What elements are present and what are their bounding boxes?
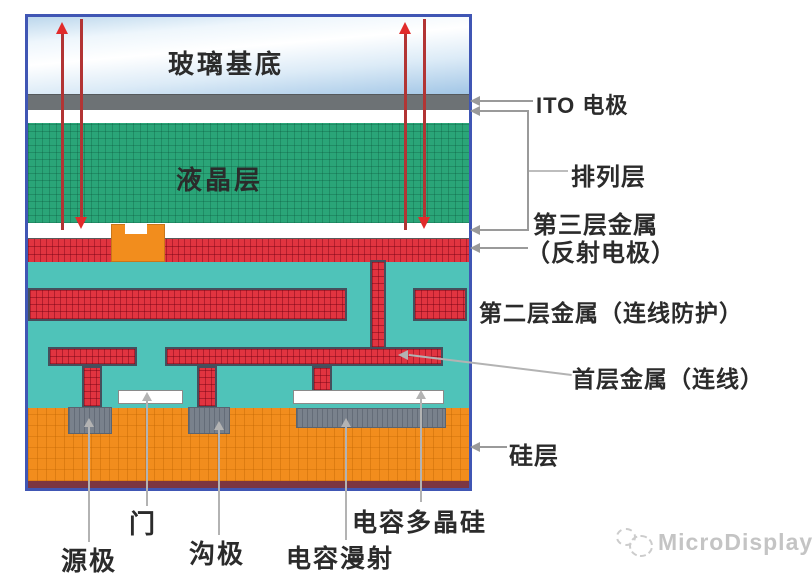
- metal3-leader-arrowhead: [470, 243, 480, 253]
- alignment-bracket-top-line: [473, 110, 529, 112]
- gate-label: 门: [129, 504, 157, 541]
- drain-leader-line: [218, 425, 220, 535]
- light-down-arrowhead: [75, 217, 87, 229]
- light-up-arrowhead: [399, 22, 411, 34]
- lcos-cross-section-figure: 玻璃基底 液晶层 ITO 电极 排列层 第三层金属 （反射电极） 第二层金属（连…: [0, 0, 812, 579]
- metal1-left-bar: [48, 347, 137, 366]
- light-down-arrowhead: [418, 217, 430, 229]
- light-arrow-line: [423, 19, 426, 217]
- source-label: 源极: [61, 541, 117, 578]
- via-column: [370, 260, 386, 349]
- cap-diffusion-leader-arrowhead: [341, 418, 351, 427]
- light-up-arrowhead: [56, 22, 68, 34]
- source-leader-line: [88, 422, 90, 542]
- cap-poly-leader-arrowhead: [416, 390, 426, 399]
- metal1-label: 首层金属（连线）: [572, 360, 764, 394]
- source-leader-arrowhead: [84, 418, 94, 427]
- metal2-label: 第二层金属（连线防护）: [479, 294, 743, 328]
- via-source: [82, 366, 102, 408]
- cap-diffusion-region: [296, 408, 446, 428]
- pixel-gap-notch: [125, 224, 147, 234]
- drain-leader-arrowhead: [214, 421, 224, 430]
- ito-label: ITO 电极: [536, 88, 628, 120]
- alignment-layer-top: [28, 110, 469, 123]
- metal3-label-line2: （反射电极）: [526, 233, 676, 268]
- light-arrow-line: [80, 19, 83, 217]
- alignment-layer-bottom: [28, 223, 469, 238]
- metal2-shield-right: [413, 288, 467, 321]
- metal3-reflective-layer: [28, 238, 469, 264]
- metal1-leader-arrowhead: [398, 350, 408, 360]
- ito-electrode-layer: [28, 94, 469, 111]
- gate-leader-line: [146, 396, 148, 506]
- microdisplay-logo-icon: [629, 535, 653, 557]
- substrate-bottom-strip: [28, 481, 469, 488]
- pixel-gap-block: [111, 224, 165, 262]
- cap-poly-label: 电容多晶硅: [352, 503, 487, 539]
- drain-label: 沟极: [189, 534, 245, 571]
- alignment-bracket-bottom-arrowhead: [470, 225, 480, 235]
- light-arrow-line: [404, 33, 407, 230]
- liquid-crystal-label: 液晶层: [176, 160, 263, 197]
- silicon-label: 硅层: [509, 436, 559, 471]
- alignment-leader-line: [529, 170, 568, 172]
- cap-diffusion-leader-line: [345, 422, 347, 540]
- ito-leader-line: [473, 100, 533, 102]
- via-drain: [197, 366, 217, 408]
- glass-substrate-label: 玻璃基底: [168, 44, 284, 81]
- cap-diffusion-label: 电容漫射: [286, 539, 394, 575]
- alignment-bracket-bottom-line: [473, 229, 529, 231]
- light-arrow-line: [61, 33, 64, 230]
- alignment-label: 排列层: [571, 157, 646, 192]
- metal3-leader-line: [473, 247, 528, 249]
- ito-leader-arrowhead: [470, 96, 480, 106]
- gate-leader-arrowhead: [142, 392, 152, 401]
- silicon-leader-arrowhead: [470, 442, 480, 452]
- metal2-shield-left: [28, 288, 347, 321]
- via-cap-poly: [312, 366, 332, 392]
- watermark-text: MicroDisplay: [658, 529, 812, 556]
- cap-poly-leader-line: [420, 394, 422, 502]
- alignment-bracket-top-arrowhead: [470, 106, 480, 116]
